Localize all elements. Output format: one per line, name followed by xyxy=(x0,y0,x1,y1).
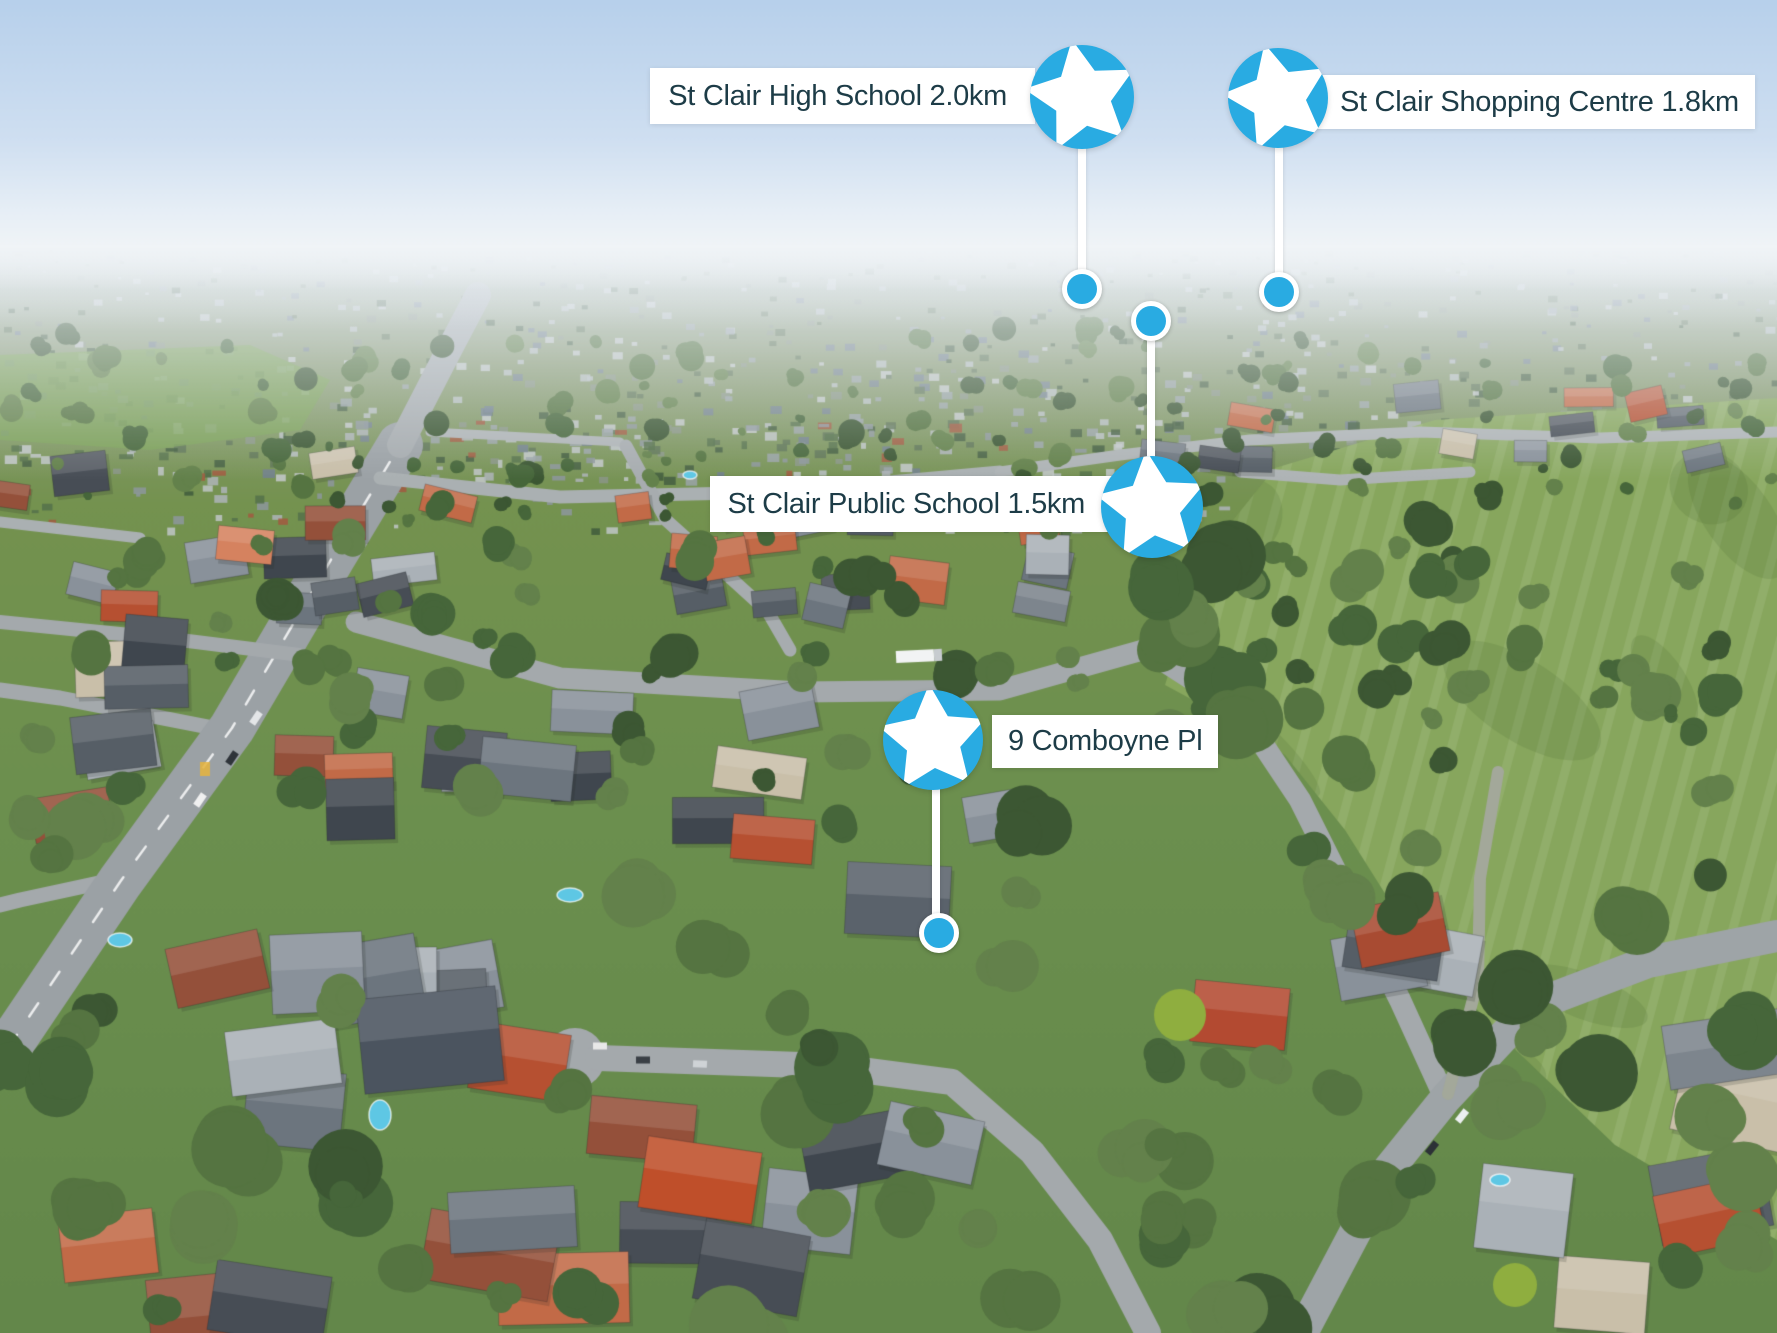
aerial-photo-canvas xyxy=(0,0,1777,1333)
marker-public-school xyxy=(1101,456,1203,558)
marker-label-text: St Clair Public School 1.5km xyxy=(728,488,1085,521)
star-icon xyxy=(1101,456,1203,558)
marker-label-text: 9 Comboyne Pl xyxy=(1008,725,1202,758)
marker-label-property: 9 Comboyne Pl xyxy=(992,715,1218,768)
marker-label-public-school: St Clair Public School 1.5km xyxy=(710,476,1119,532)
connector-line xyxy=(1147,326,1155,462)
marker-label-text: St Clair Shopping Centre 1.8km xyxy=(1340,86,1739,119)
location-dot xyxy=(919,913,959,953)
star-icon xyxy=(1030,45,1134,149)
connector-line xyxy=(932,778,940,918)
marker-label-text: St Clair High School 2.0km xyxy=(668,80,1007,113)
star-icon xyxy=(883,690,983,790)
location-dot xyxy=(1062,269,1102,309)
star-icon xyxy=(1228,48,1328,148)
marker-label-high-school: St Clair High School 2.0km xyxy=(650,68,1035,124)
marker-label-shopping-centre: St Clair Shopping Centre 1.8km xyxy=(1262,75,1755,129)
marker-shopping-centre xyxy=(1228,48,1328,148)
marker-property xyxy=(883,690,983,790)
location-dot xyxy=(1259,272,1299,312)
location-dot xyxy=(1131,301,1171,341)
marker-high-school xyxy=(1030,45,1134,149)
aerial-property-photo: St Clair High School 2.0km St Clair Shop… xyxy=(0,0,1777,1333)
